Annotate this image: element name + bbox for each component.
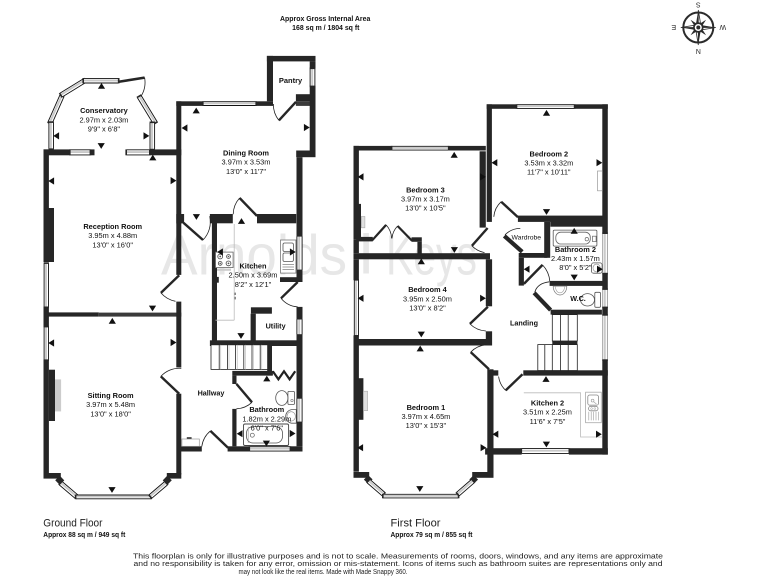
svg-text:13'0" x 10'5": 13'0" x 10'5": [405, 204, 446, 213]
svg-text:Wardrobe: Wardrobe: [512, 234, 542, 241]
svg-text:Hallway: Hallway: [198, 388, 225, 397]
svg-text:and no responsibility is taken: and no responsibility is taken for any e…: [134, 561, 663, 568]
svg-text:168 sq m / 1804 sq ft: 168 sq m / 1804 sq ft: [292, 25, 360, 32]
svg-text:2.50m x 3.69m: 2.50m x 3.69m: [229, 271, 278, 280]
svg-text:2.97m x 2.03m: 2.97m x 2.03m: [79, 115, 128, 124]
svg-text:Bedroom 1: Bedroom 1: [407, 403, 446, 412]
svg-text:3.97m x 4.65m: 3.97m x 4.65m: [401, 412, 450, 421]
svg-text:8'2" x 12'1": 8'2" x 12'1": [235, 280, 272, 289]
svg-text:Bedroom 4: Bedroom 4: [408, 285, 447, 294]
svg-text:Bedroom 3: Bedroom 3: [406, 185, 445, 194]
svg-text:This floorplan is only for ill: This floorplan is only for illustrative …: [133, 553, 663, 560]
svg-text:may not look like the real ite: may not look like the real items. Made w…: [239, 569, 408, 576]
svg-text:13'0" x 11'7": 13'0" x 11'7": [226, 167, 266, 176]
svg-text:Approx 79 sq m / 855 sq ft: Approx 79 sq m / 855 sq ft: [391, 530, 474, 539]
svg-text:Kitchen 2: Kitchen 2: [531, 399, 564, 408]
svg-text:Ground Floor: Ground Floor: [43, 517, 103, 529]
svg-text:Landing: Landing: [510, 319, 538, 328]
svg-text:Pantry: Pantry: [279, 76, 303, 85]
svg-text:13'0" x 16'0": 13'0" x 16'0": [92, 240, 133, 249]
svg-text:Sitting Room: Sitting Room: [88, 391, 134, 400]
svg-text:8'0" x 5'2": 8'0" x 5'2": [559, 263, 592, 272]
svg-text:11'7" x 10'11": 11'7" x 10'11": [527, 168, 571, 177]
svg-text:3.97m x 3.17m: 3.97m x 3.17m: [401, 195, 450, 204]
svg-text:Conservatory: Conservatory: [80, 106, 129, 115]
svg-text:3.95m x 2.50m: 3.95m x 2.50m: [403, 294, 452, 303]
svg-text:Kitchen: Kitchen: [239, 262, 267, 271]
svg-text:Reception Room: Reception Room: [83, 222, 142, 231]
svg-text:W.C.: W.C.: [570, 294, 586, 303]
svg-text:E: E: [671, 23, 676, 30]
svg-text:2.43m x 1.57m: 2.43m x 1.57m: [551, 254, 600, 263]
svg-text:3.95m x 4.88m: 3.95m x 4.88m: [88, 231, 137, 240]
svg-text:1.82m x 2.29m: 1.82m x 2.29m: [242, 414, 291, 423]
svg-text:3.97m x 5.48m: 3.97m x 5.48m: [86, 400, 135, 409]
svg-text:Bathroom 2: Bathroom 2: [555, 245, 596, 254]
svg-text:S: S: [696, 0, 701, 7]
svg-text:3.53m x 3.32m: 3.53m x 3.32m: [524, 159, 573, 168]
svg-text:Bedroom 2: Bedroom 2: [529, 149, 568, 158]
svg-text:11'6" x 7'5": 11'6" x 7'5": [530, 417, 566, 426]
svg-text:3.51m x 2.25m: 3.51m x 2.25m: [523, 408, 572, 417]
svg-text:Approx Gross Internal Area: Approx Gross Internal Area: [280, 16, 370, 23]
svg-text:9'9" x 6'8": 9'9" x 6'8": [88, 125, 121, 134]
svg-text:Dining Room: Dining Room: [223, 149, 269, 158]
svg-text:6'0" x 7'6": 6'0" x 7'6": [251, 424, 284, 433]
svg-text:13'0" x 18'0": 13'0" x 18'0": [90, 409, 131, 418]
svg-text:13'0" x 8'2": 13'0" x 8'2": [409, 304, 446, 313]
svg-text:Approx 88 sq m / 949 sq ft: Approx 88 sq m / 949 sq ft: [43, 530, 126, 539]
svg-text:3.97m x 3.53m: 3.97m x 3.53m: [222, 158, 271, 167]
svg-text:N: N: [696, 47, 701, 54]
svg-text:Bathroom: Bathroom: [249, 405, 284, 414]
svg-text:W: W: [719, 23, 726, 30]
svg-text:13'0" x 15'3": 13'0" x 15'3": [406, 421, 447, 430]
svg-text:Utility: Utility: [266, 321, 286, 330]
svg-text:First Floor: First Floor: [391, 517, 441, 529]
